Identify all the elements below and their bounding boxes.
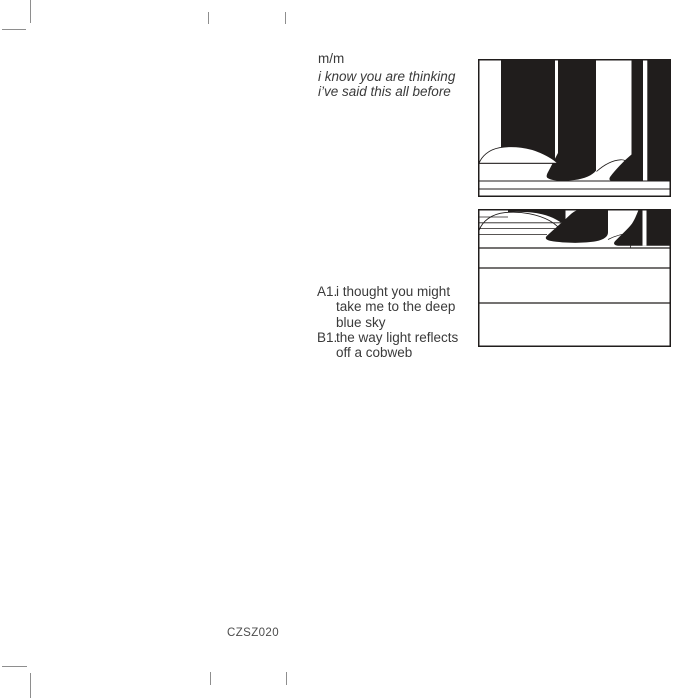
crop-mark-bottom-left-vertical <box>30 673 31 698</box>
crop-mark-top-left-vertical <box>30 0 31 23</box>
fold-mark-bottom-spine-right <box>286 672 287 685</box>
track-title: i thought you might take me to the deep … <box>336 284 455 330</box>
front-cover-graphic <box>478 59 671 197</box>
track-label: B1. <box>317 330 336 361</box>
fold-mark-bottom-spine-left <box>210 672 211 685</box>
catalog-number: CZSZ020 <box>227 627 279 640</box>
track-title: the way light reflects off a cobweb <box>336 330 458 361</box>
back-cover-art <box>478 209 671 347</box>
track-label: A1. <box>317 284 336 330</box>
front-cover-art <box>478 59 671 197</box>
back-cover-graphic <box>478 209 671 347</box>
release-header: m/m i know you are thinking i’ve said th… <box>318 51 455 99</box>
album-title: i know you are thinking i’ve said this a… <box>318 70 455 99</box>
fold-mark-top-spine-left <box>208 12 209 24</box>
crop-mark-bottom-left-horizontal <box>2 666 27 667</box>
fold-mark-top-spine-right <box>285 12 286 24</box>
artist-name: m/m <box>318 51 455 66</box>
crop-mark-top-left-horizontal <box>2 29 26 30</box>
track-row-b1: B1. the way light reflects off a cobweb <box>317 330 458 361</box>
track-row-a1: A1. i thought you might take me to the d… <box>317 284 458 330</box>
tracklist: A1. i thought you might take me to the d… <box>317 284 458 360</box>
